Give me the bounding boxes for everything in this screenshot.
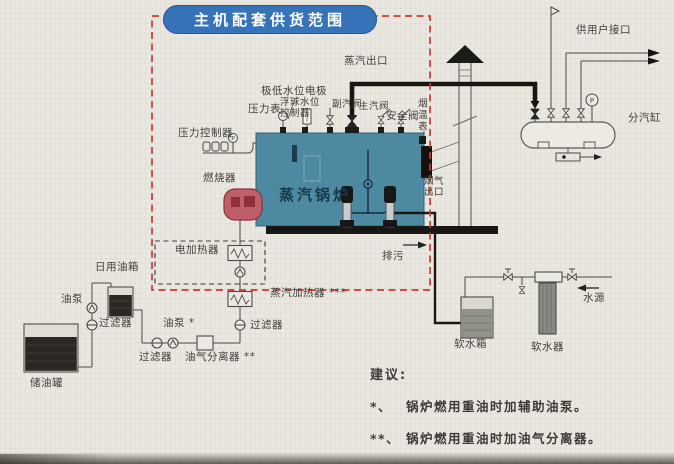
chimney xyxy=(431,63,477,232)
softener-outlet-valve-icon xyxy=(504,274,513,281)
chimney-cap-icon xyxy=(446,45,484,63)
header-inlet-valve-icon xyxy=(531,109,539,119)
header-valve-icon-1 xyxy=(548,109,555,118)
boiler-system-diagram: P P xyxy=(0,0,674,464)
label-low-water-electrode: 极低水位电极 xyxy=(261,85,327,97)
diagram-title-text: 主机配套供货范围 xyxy=(194,9,346,30)
label-filter-2: 过滤器 xyxy=(139,351,172,363)
label-separator: 油气分离器 ** xyxy=(185,351,255,363)
daily-oil-tank xyxy=(108,287,133,317)
note-text: 锅炉燃用重油时加油气分离器。 xyxy=(406,428,602,447)
note-item: **、 锅炉燃用重油时加油气分离器。 xyxy=(370,428,602,447)
notes-block: 建议: *、 锅炉燃用重油时加辅助油泵。 **、 锅炉燃用重油时加油气分离器。 … xyxy=(370,364,602,464)
label-blowdown: 排污 xyxy=(382,250,404,262)
filter-icon-left xyxy=(87,320,97,330)
filter-icon-right xyxy=(235,320,245,330)
aux-steam-valve-icon xyxy=(327,116,334,125)
label-electric-heater: 电加热器 xyxy=(175,244,219,256)
heater-pump-icon xyxy=(235,267,245,277)
water-source-arrow-icon xyxy=(577,285,599,292)
header-pressure-gauge-letter: P xyxy=(590,97,594,105)
electric-heater-icon xyxy=(228,246,252,261)
steam-heater-icon xyxy=(228,292,252,307)
soft-water-tank xyxy=(461,297,493,338)
label-daily-oil-tank: 日用油箱 xyxy=(95,261,139,273)
oil-gas-separator-icon xyxy=(197,336,213,350)
note-item: *、 锅炉燃用重油时加辅助油泵。 xyxy=(370,396,602,415)
label-flue-gas-outlet: 烟气 出口 xyxy=(424,177,444,199)
water-source-valve-icon xyxy=(568,274,577,281)
note-marker: **、 xyxy=(370,428,406,447)
label-aux-steam-valve: 副汽阀 xyxy=(332,100,362,111)
note-marker: *、 xyxy=(370,396,406,415)
label-boiler-name: 蒸汽锅炉 xyxy=(279,184,351,205)
label-flue-temp-gauge: 烟温表 xyxy=(415,98,426,140)
label-oil-pump: 油泵 xyxy=(61,293,83,305)
label-storage-tank: 储油罐 xyxy=(30,377,63,389)
label-steam-outlet: 蒸汽出口 xyxy=(344,55,388,67)
label-user-interface: 供用户接口 xyxy=(576,24,631,36)
oil-storage-tank xyxy=(24,324,78,372)
blowdown-arrow-icon xyxy=(403,242,427,249)
boiler-base xyxy=(266,226,498,234)
main-steam-valve-icon xyxy=(348,116,357,127)
notes-heading: 建议: xyxy=(370,364,602,383)
filter-icon-bottom xyxy=(152,338,162,348)
drain-valve-icon xyxy=(519,287,525,294)
header-valve-icon-3 xyxy=(578,109,585,118)
label-burner: 燃烧器 xyxy=(203,172,236,184)
label-pressure-controller: 压力控制器 xyxy=(178,127,233,139)
water-softener xyxy=(535,272,562,334)
label-float-level-controller: 浮球水位 控制器 xyxy=(280,98,320,120)
oil-pump-icon-left xyxy=(87,303,97,313)
header-valve-icon-2 xyxy=(563,109,570,118)
safety-valve-icon xyxy=(378,116,384,124)
flue-gas-outlet-box xyxy=(421,146,432,178)
label-oil-pump-aux: 油泵 * xyxy=(163,317,195,329)
burner-unit xyxy=(224,189,262,220)
note-text: 锅炉燃用重油时加辅助油泵。 xyxy=(406,396,588,415)
label-steam-heater: 蒸汽加热器 *** xyxy=(270,287,346,299)
label-steam-header: 分汽缸 xyxy=(628,112,661,124)
label-water-source: 水源 xyxy=(583,292,605,304)
label-pressure-gauge: 压力表 xyxy=(248,103,281,115)
label-filter-3: 过滤器 xyxy=(250,319,283,331)
label-main-steam-valve: 主汽阀 xyxy=(359,102,389,113)
label-water-softener: 软水器 xyxy=(531,341,564,353)
diagram-title: 主机配套供货范围 xyxy=(163,5,377,34)
label-soft-water-tank: 软水箱 xyxy=(454,338,487,350)
scan-corner-shadow xyxy=(0,454,110,464)
aux-oil-pump-icon xyxy=(168,338,178,348)
label-filter-1: 过滤器 xyxy=(99,317,132,329)
